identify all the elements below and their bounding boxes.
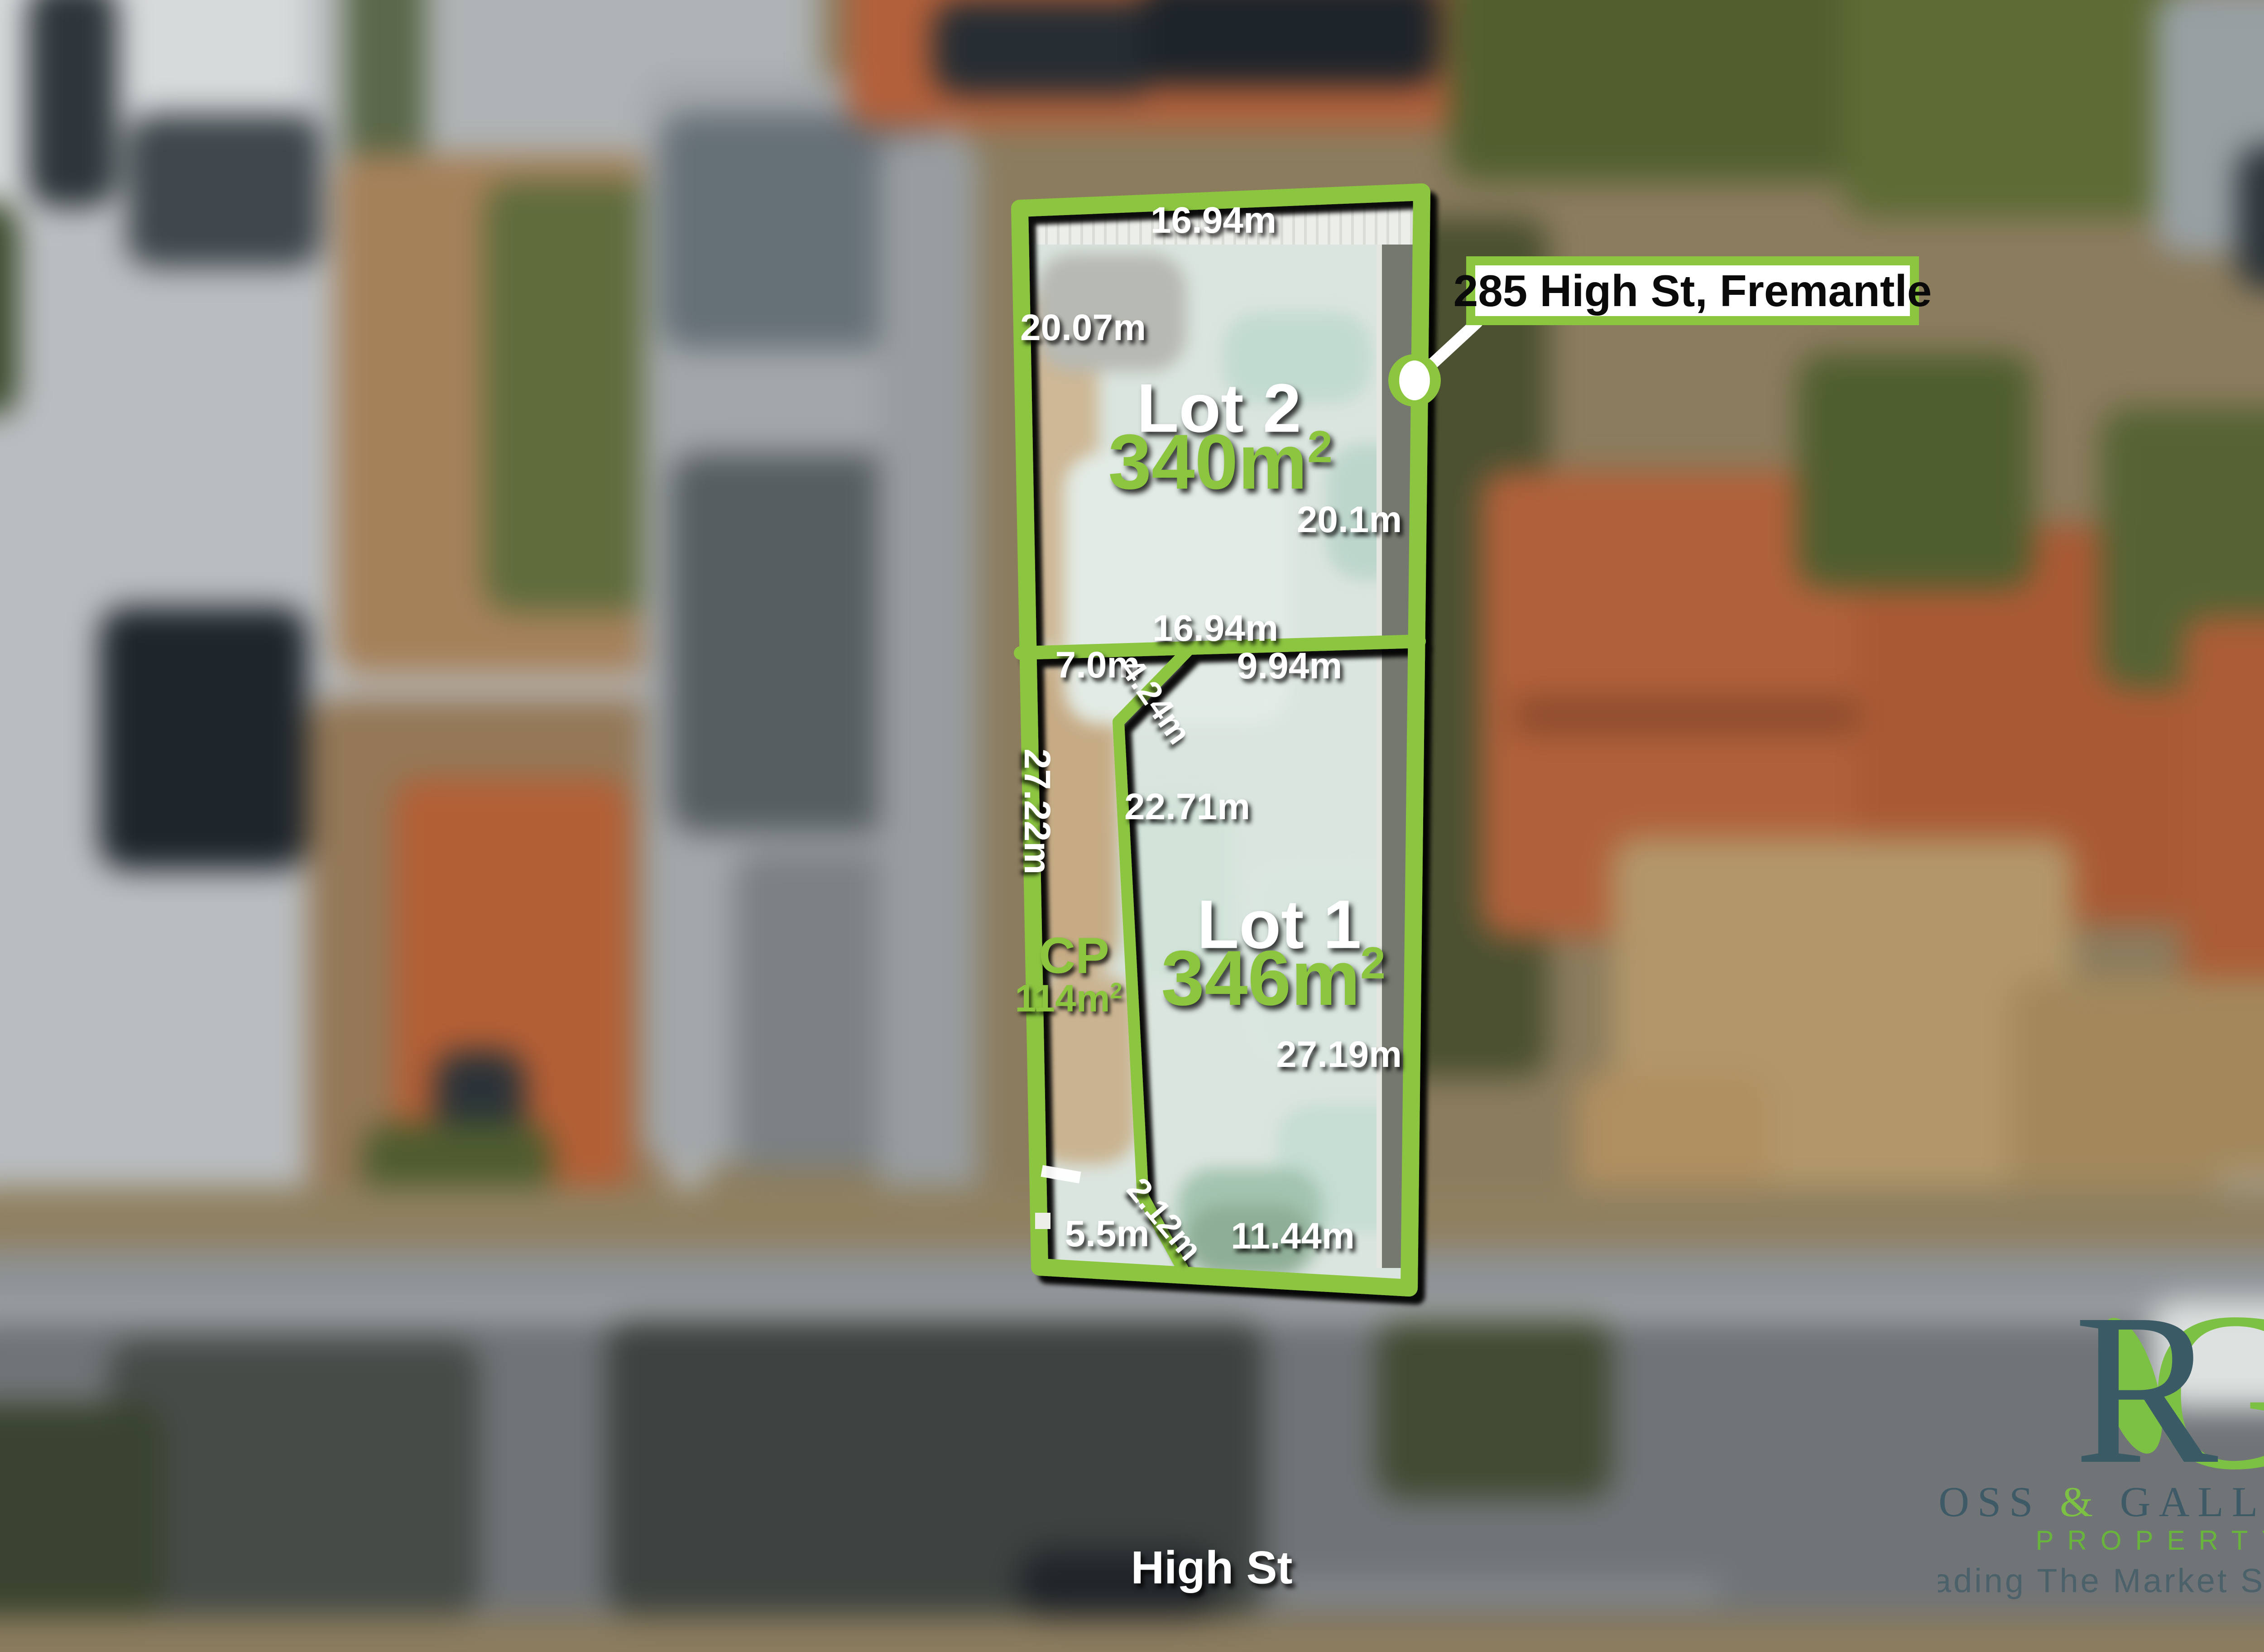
dim-label-lot1-east: 27.19m <box>1276 1033 1402 1076</box>
lot1-area: 346m2 <box>1161 933 1385 1023</box>
dim-label-lot1-north-right: 9.94m <box>1237 645 1343 687</box>
logo-subtitle: PROPERTY <box>2036 1525 2264 1556</box>
carport-label: CP <box>1039 927 1109 985</box>
lot2-area: 340m2 <box>1108 417 1332 507</box>
address-callout-text: 285 High St, Fremantle <box>1453 265 1932 317</box>
agency-logo: G R ROSS & GALLOWAY PROPERTY Leading The… <box>1938 1268 2264 1630</box>
dim-label-lot2-top: 16.94m <box>1151 199 1276 242</box>
callout-anchor-dot <box>1399 360 1430 400</box>
dim-label-lot2-bottom: 16.94m <box>1152 607 1278 650</box>
dim-label-lot2-left: 20.07m <box>1020 307 1146 349</box>
logo-tagline: Leading The Market Since 1966 <box>1938 1562 2264 1599</box>
carport-area: 114m2 <box>1015 977 1122 1021</box>
street-name-label: High St <box>1131 1542 1293 1594</box>
ground-marking <box>1035 1213 1050 1229</box>
dim-label-lot2-right: 20.1m <box>1297 499 1402 541</box>
dim-label-lot1-south-left: 5.5m <box>1065 1213 1150 1255</box>
address-callout: 285 High St, Fremantle <box>1466 256 1919 325</box>
dim-label-lot1-west: 27.22m <box>1016 749 1058 874</box>
site-outline <box>1020 192 1422 1288</box>
logo-name: ROSS & GALLOWAY <box>1938 1479 2264 1526</box>
dim-label-lot1-south-right: 11.44m <box>1231 1215 1355 1258</box>
ground-marking <box>1041 1165 1081 1184</box>
aerial-lot-plan: 285 High St, Fremantle 16.94m 20.07m Lot… <box>0 0 2264 1652</box>
dim-label-lot1-inner: 22.71m <box>1124 786 1250 828</box>
logo-monogram-r: R <box>2074 1269 2219 1509</box>
